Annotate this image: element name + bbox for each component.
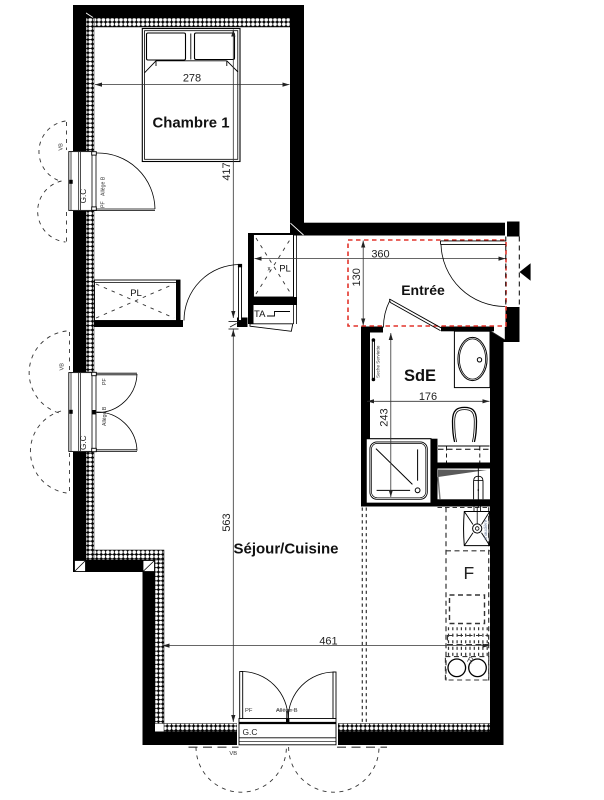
svg-text:TA: TA [254, 309, 266, 320]
svg-text:Chambre 1: Chambre 1 [153, 116, 230, 132]
svg-text:SdE: SdE [404, 367, 436, 385]
svg-text:Seche Serviette: Seche Serviette [376, 345, 381, 378]
svg-text:Allège B: Allège B [276, 708, 298, 714]
svg-text:VB: VB [60, 363, 66, 371]
svg-text:PF: PF [245, 708, 253, 714]
svg-text:417: 417 [221, 162, 233, 180]
svg-text:278: 278 [183, 73, 201, 85]
svg-text:VB: VB [59, 143, 65, 151]
svg-text:VB: VB [229, 751, 237, 757]
svg-text:563: 563 [221, 513, 233, 531]
svg-text:PF: PF [101, 201, 107, 208]
svg-text:243: 243 [379, 408, 391, 426]
svg-text:360: 360 [371, 248, 389, 260]
svg-text:PL: PL [279, 264, 291, 275]
svg-text:Allège B: Allège B [101, 176, 107, 196]
svg-text:x: x [268, 267, 271, 273]
svg-text:chaudière: chaudière [483, 519, 488, 540]
svg-text:130: 130 [351, 268, 363, 286]
svg-text:461: 461 [319, 635, 337, 647]
svg-text:176: 176 [419, 391, 437, 403]
svg-text:G.C: G.C [243, 727, 258, 737]
svg-text:G.C: G.C [79, 189, 88, 204]
svg-text:PL: PL [130, 288, 142, 299]
svg-text:PF: PF [102, 378, 108, 385]
svg-text:Séjour/Cuisine: Séjour/Cuisine [233, 541, 338, 558]
svg-text:Allège B: Allège B [102, 406, 108, 426]
svg-text:Entrée: Entrée [401, 282, 445, 298]
svg-text:F: F [464, 563, 475, 583]
svg-text:G.C: G.C [79, 435, 88, 450]
